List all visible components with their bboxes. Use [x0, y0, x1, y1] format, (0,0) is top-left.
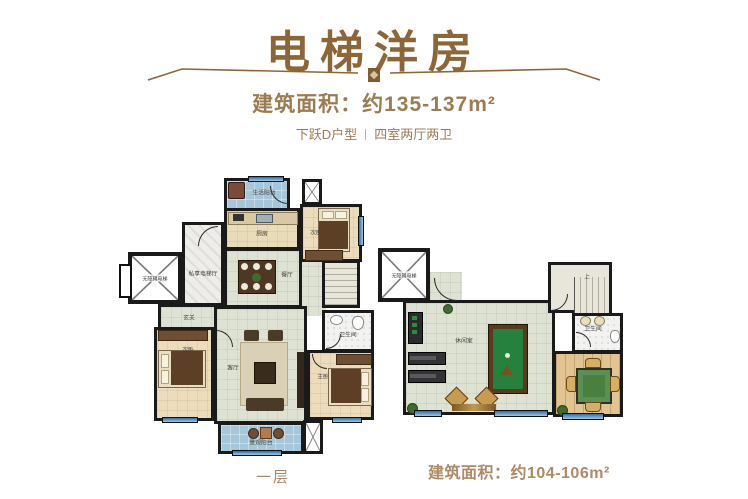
sofa	[246, 398, 284, 411]
sink	[330, 315, 343, 325]
room-label: 生活阳台	[253, 188, 276, 197]
room-label: 休闲室	[456, 336, 473, 345]
chair	[585, 402, 601, 412]
stove	[233, 214, 244, 221]
toilet	[352, 316, 364, 330]
treadmill	[408, 352, 446, 365]
master-window	[332, 417, 362, 423]
room-label: 厨房	[256, 229, 268, 238]
unit-type-label: 下跃D户型	[296, 127, 357, 142]
unit-spec-line: 下跃D户型四室两厅两卫	[0, 124, 748, 143]
room-label: 主卧	[318, 372, 330, 381]
chair	[610, 376, 620, 392]
bed	[328, 368, 372, 406]
mahjong-table	[576, 368, 612, 404]
room-label: 餐厅	[282, 269, 294, 278]
balcony-window	[248, 176, 284, 182]
room-label: 无障碍电梯	[391, 271, 417, 279]
floor-caption-first: 一层	[238, 466, 308, 487]
billiard-table	[488, 324, 528, 394]
duct-frame	[119, 264, 132, 298]
floorplan-poster: 电梯洋房 建筑面积：约135-137m² 下跃D户型四室两厅两卫 无障碍电梯 私…	[0, 0, 748, 499]
leisure-window	[494, 410, 548, 417]
ac-shaft-top	[302, 179, 322, 205]
kitchen-sink	[256, 214, 273, 223]
bedroom-window	[358, 216, 364, 246]
ac-shaft-bottom	[303, 420, 323, 454]
plant	[443, 304, 453, 314]
stairs-up-label: 上	[584, 271, 590, 280]
toilet	[610, 330, 620, 343]
dining-table	[238, 260, 276, 294]
stairs-left-plan	[322, 260, 360, 308]
wardrobe	[158, 330, 208, 341]
room-label: 玄关	[183, 313, 195, 322]
bed	[318, 208, 350, 252]
room-elevator-left: 无障碍电梯	[128, 252, 182, 304]
bedroom-window	[162, 417, 198, 423]
room-label: 卫生间	[339, 330, 356, 339]
divider-ornament-icon	[368, 68, 380, 82]
weight-rack	[408, 312, 423, 344]
balcony-chair	[273, 428, 284, 439]
building-area-main: 建筑面积：约135-137m²	[0, 88, 748, 118]
wardrobe	[305, 250, 343, 261]
balcony-window	[232, 450, 282, 456]
tv-cabinet	[297, 352, 304, 408]
room-label: 景观阳台	[249, 437, 272, 446]
washing-machine	[228, 182, 245, 199]
leisure-window	[414, 410, 442, 417]
wardrobe	[336, 354, 372, 365]
treadmill	[408, 370, 446, 383]
coffee-table	[254, 362, 276, 384]
room-label: 私享电梯厅	[189, 269, 218, 278]
room-elevator-right: 无障碍电梯	[378, 248, 430, 302]
room-label: 客厅	[227, 363, 239, 372]
rooms-spec-label: 四室两厅两卫	[374, 127, 452, 142]
card-room-window	[562, 413, 604, 420]
chair	[585, 358, 601, 368]
armchair	[268, 330, 283, 341]
chair	[566, 376, 576, 392]
room-label: 次卧	[311, 228, 323, 237]
room-label: 次卧	[183, 345, 195, 354]
floor-caption-lower-area: 建筑面积：约104-106m²	[428, 459, 610, 483]
floor-mat	[452, 404, 496, 411]
room-label: 无障碍电梯	[142, 274, 168, 282]
armchair	[244, 330, 259, 341]
spec-separator	[365, 129, 366, 140]
bed	[158, 350, 206, 388]
room-label: 卫生间	[584, 324, 601, 333]
